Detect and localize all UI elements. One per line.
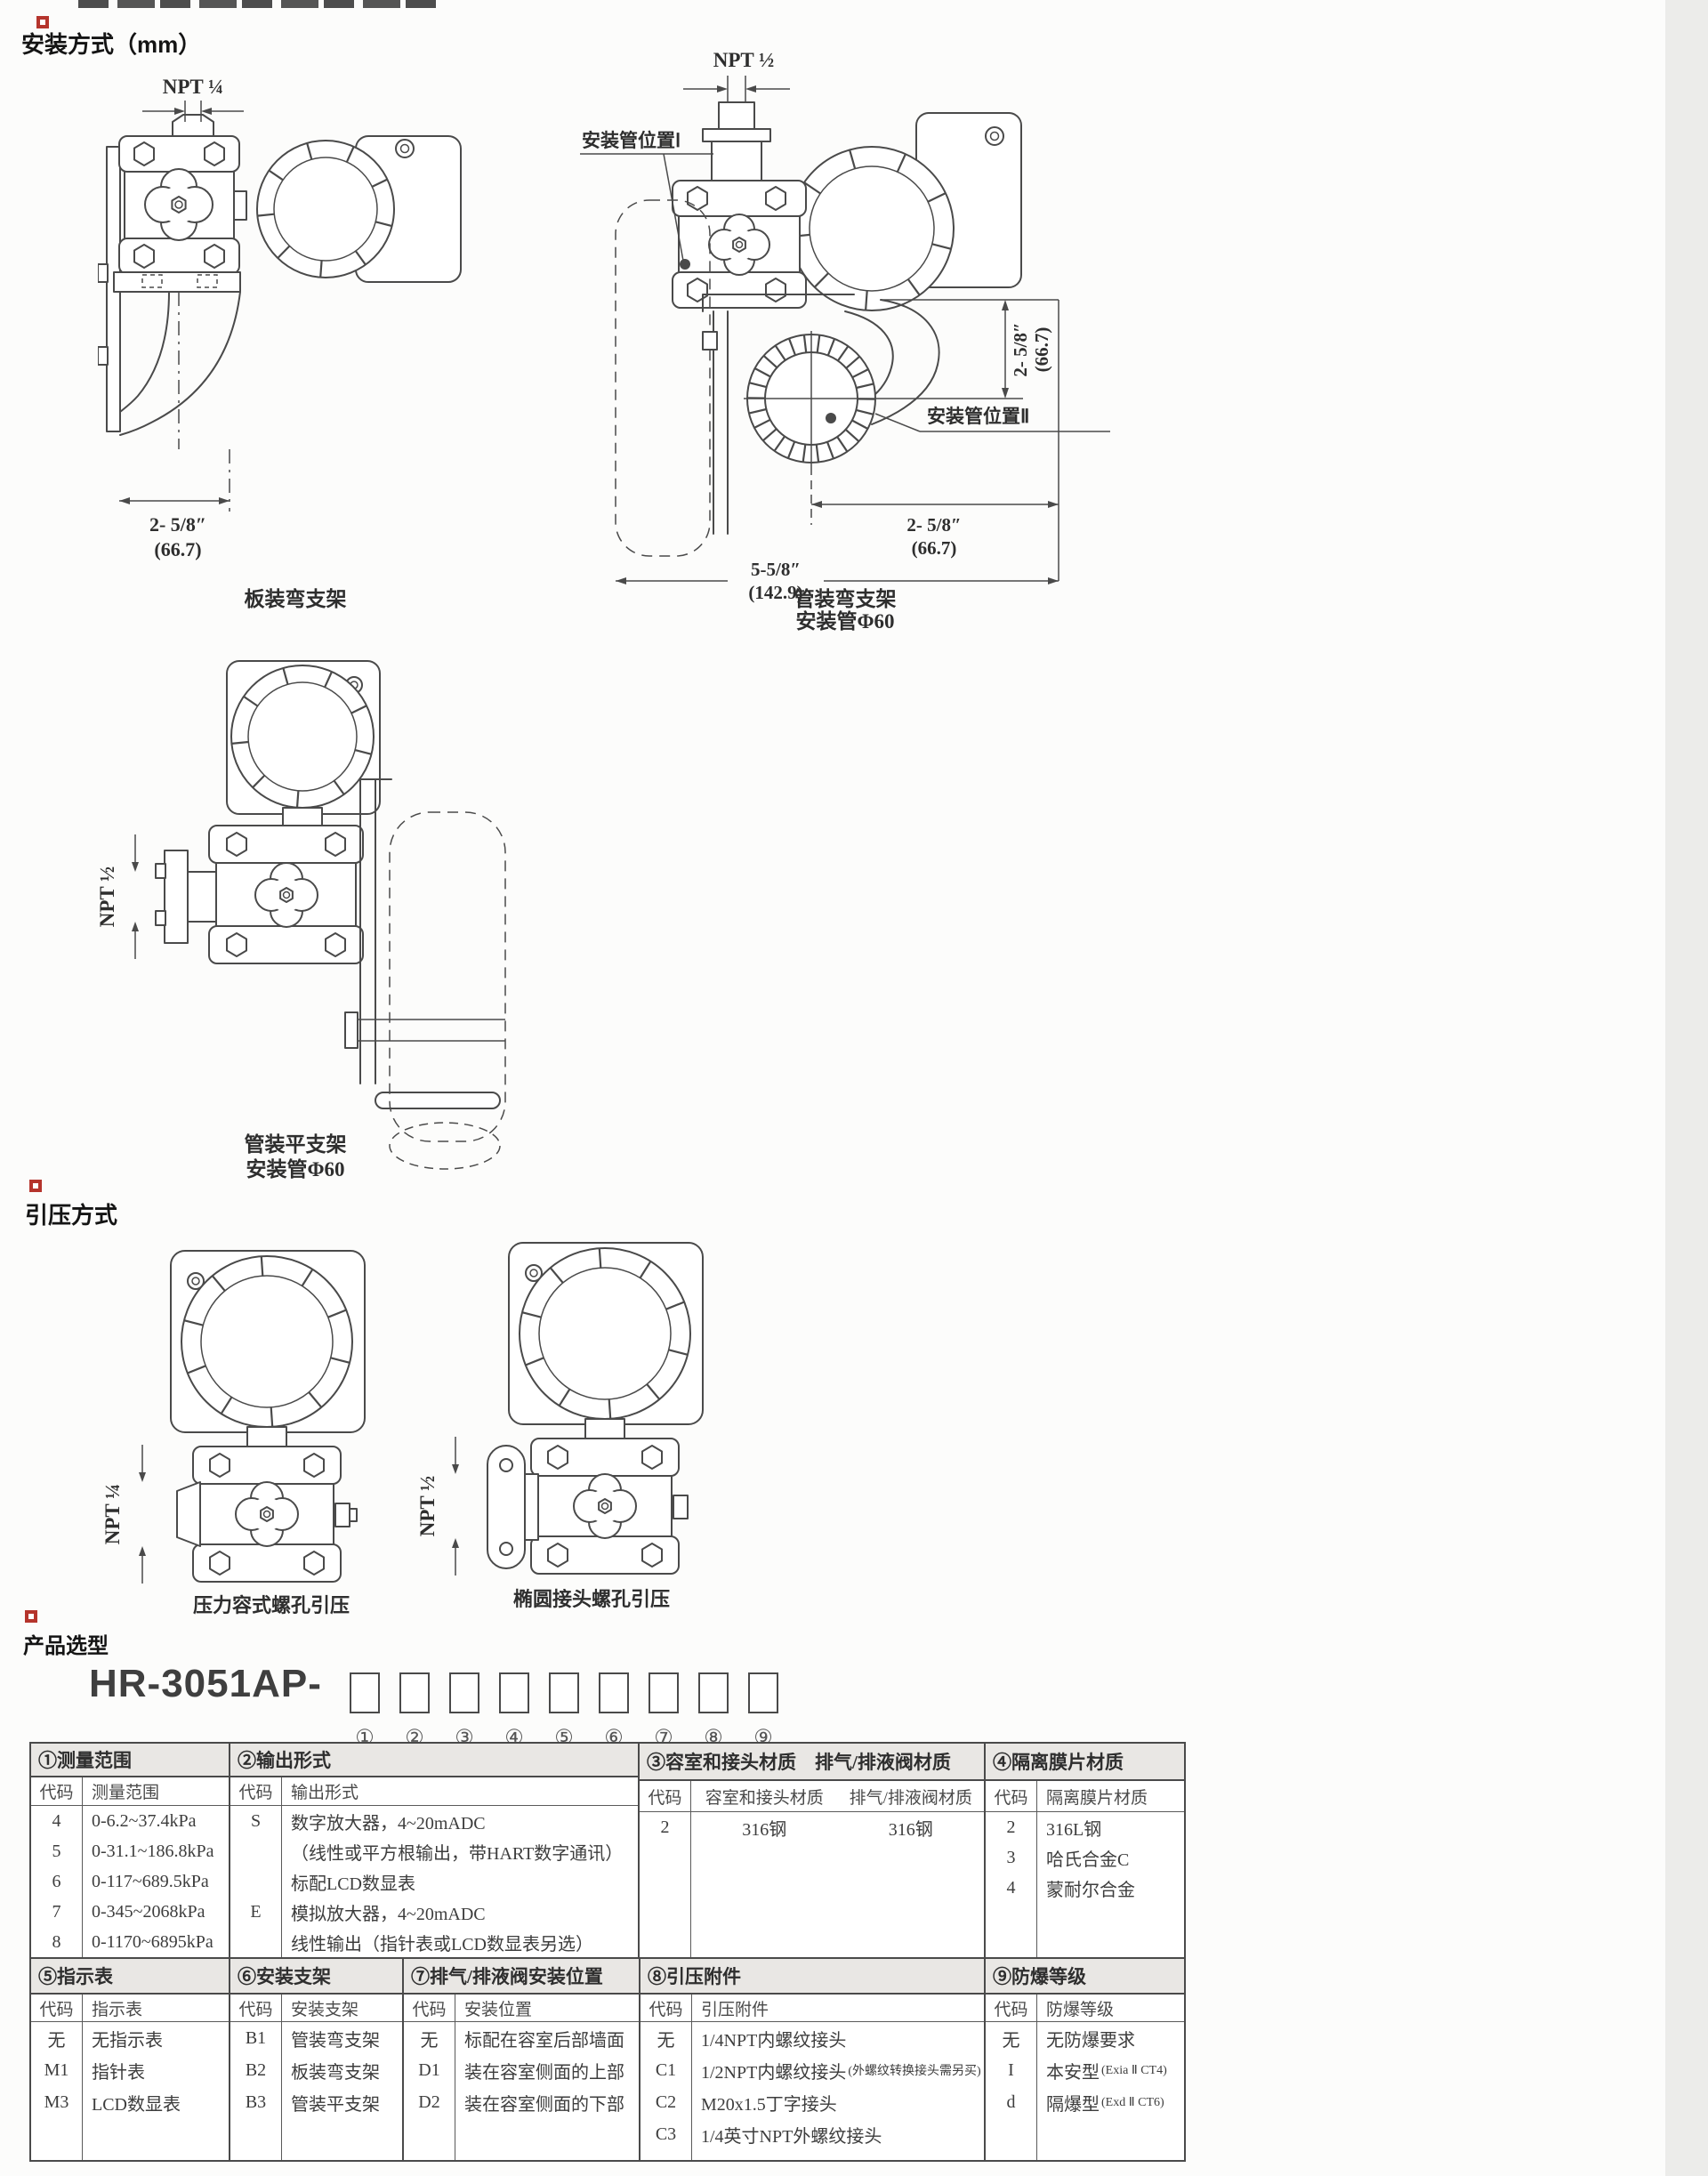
column-measure-range: ①测量范围 代码 测量范围 4 0-6.2~37.4kPa 5 0-31.1~1…: [31, 1744, 230, 1957]
table-row: 无 标配在容室后部墙面: [404, 2022, 639, 2054]
scan-edge-band: [1665, 0, 1708, 2176]
cropped-text-strip: [78, 0, 445, 8]
option-box-8: [698, 1672, 729, 1713]
table-row: B2 板装弯支架: [230, 2054, 402, 2086]
vertical-dim-mm-label: (66.7): [1031, 327, 1052, 373]
column-header: ⑦排气/排液阀安装位置: [404, 1959, 639, 1995]
subheader-label: 输出形式: [282, 1777, 638, 1805]
npt-dimension: [139, 1445, 146, 1584]
table-row: C3 1/4英寸NPT外螺纹接头: [640, 2118, 984, 2150]
table-row: M1 指针表: [31, 2054, 229, 2086]
desc-note: (外螺纹转换接头需另买): [848, 2061, 980, 2079]
desc-note: (Exia Ⅱ CT4): [1101, 2063, 1167, 2078]
desc-cell: 0-345~2068kPa: [83, 1897, 229, 1927]
desc-cell: 0-31.1~186.8kPa: [83, 1836, 229, 1866]
table-row: 无 无指示表: [31, 2022, 229, 2054]
code-cell: [230, 1866, 282, 1897]
electronics-housing: [227, 661, 380, 814]
table-row: 7 0-345~2068kPa: [31, 1897, 229, 1927]
subheader-label-1: 容室和接头材质: [691, 1785, 838, 1809]
table-row: B1 管装弯支架: [230, 2022, 402, 2054]
code-cell: C3: [640, 2118, 692, 2150]
model-option-2: ②: [399, 1672, 431, 1751]
table-row: S 数字放大器，4~20mADC: [230, 1806, 638, 1836]
table-row: 3 哈氏合金C: [986, 1842, 1184, 1873]
mounting-pipe-dashed: [390, 812, 505, 1169]
desc-cell: 哈氏合金C: [1037, 1842, 1184, 1873]
table-row: 标配LCD数显表: [230, 1866, 638, 1897]
dim-mm-label: (66.7): [154, 538, 201, 560]
subheader-label-2: 排气/排液阀材质: [838, 1785, 985, 1809]
column-header: ⑧引压附件: [640, 1959, 984, 1995]
desc-cell: 模拟放大器，4~20mADC: [282, 1897, 638, 1927]
column-header: ③容室和接头材质 排气/排液阀材质: [640, 1744, 984, 1781]
diagram-caption-line2: 安装管Φ60: [246, 1157, 344, 1181]
code-cell: 无: [31, 2022, 83, 2054]
transmitter-body: [177, 1427, 357, 1582]
desc-cell: 指针表: [83, 2054, 229, 2086]
option-box-3: [449, 1672, 479, 1713]
table-row: 5 0-31.1~186.8kPa: [31, 1836, 229, 1866]
desc-cell: 管装平支架: [282, 2086, 402, 2118]
column-bracket: ⑥安装支架 代码 安装支架 B1 管装弯支架 B2 板装弯支架 B3: [230, 1959, 404, 2160]
selection-table: ①测量范围 代码 测量范围 4 0-6.2~37.4kPa 5 0-31.1~1…: [29, 1742, 1186, 2162]
subheader-code: 代码: [986, 1781, 1037, 1811]
code-cell: 2: [640, 1812, 691, 1842]
pipe-position-2-label: 安装管位置Ⅱ: [927, 406, 1029, 427]
model-prefix: HR-3051AP-: [89, 1662, 322, 1706]
datasheet-page: 安装方式（mm）: [0, 0, 1708, 2176]
diagram-pipe-flat-bracket: NPT ½ 管装平支架 安装管Φ60: [89, 648, 605, 1190]
npt-half-label: NPT ½: [418, 1476, 439, 1537]
transmitter-body: [209, 808, 363, 963]
npt-dimension: [683, 76, 790, 102]
diagram-caption: 板装弯支架: [245, 587, 347, 610]
desc-note: (Exd Ⅱ CT6): [1101, 2095, 1164, 2110]
code-cell: 无: [640, 2022, 692, 2054]
option-box-7: [649, 1672, 679, 1713]
desc-cell: （线性或平方根输出，带HART数字通讯）: [282, 1836, 638, 1866]
flat-bracket: [345, 779, 505, 1108]
section-title-selection: 产品选型: [23, 1628, 109, 1659]
code-cell: 4: [31, 1806, 83, 1836]
subheader-label: 隔离膜片材质: [1037, 1781, 1184, 1811]
column-header: ⑤指示表: [31, 1959, 229, 1995]
code-cell: 7: [31, 1897, 83, 1927]
subheader-code: 代码: [404, 1995, 455, 2021]
table-row: 无 无防爆要求: [986, 2022, 1184, 2054]
model-option-7: ⑦: [648, 1672, 680, 1751]
subheader-code: 代码: [986, 1995, 1037, 2021]
code-cell: S: [230, 1806, 282, 1836]
subheader-code: 代码: [31, 1995, 83, 2021]
desc-cell: 管装弯支架: [282, 2022, 402, 2054]
table-row: 4 蒙耐尔合金: [986, 1873, 1184, 1903]
subheader-label: 指示表: [83, 1995, 229, 2021]
diagram-caption: 压力容式螺孔引压: [193, 1594, 350, 1616]
code-cell: D1: [404, 2054, 455, 2086]
dim-inch-label: 2- 5/8″: [149, 513, 206, 536]
subheader-label: 安装支架: [282, 1995, 402, 2021]
dim1-inch-label: 2- 5/8″: [906, 514, 961, 536]
diagram-pipe-bent-bracket: 安装管位置Ⅰ 安装管位置Ⅱ NPT ½ 2- 5/8″ (66.: [578, 40, 1112, 632]
desc-cell: 板装弯支架: [282, 2054, 402, 2086]
material-cell-1: 316钢: [691, 1815, 838, 1841]
model-option-5: ⑤: [548, 1672, 580, 1751]
npt-half-label: NPT ½: [713, 49, 775, 71]
table-row: C1 1/2NPT内螺纹接头(外螺纹转换接头需另买): [640, 2054, 984, 2086]
desc-cell: 0-1170~6895kPa: [83, 1927, 229, 1957]
option-box-5: [549, 1672, 579, 1713]
subheader-label: 防爆等级: [1037, 1995, 1184, 2021]
dim1-mm-label: (66.7): [912, 537, 957, 559]
model-option-1: ①: [349, 1672, 381, 1751]
section-title-pressure-tap: 引压方式: [25, 1197, 117, 1230]
desc-cell: 装在容室侧面的下部: [455, 2086, 639, 2118]
desc-cell: 1/4英寸NPT外螺纹接头: [701, 2122, 882, 2148]
code-cell: 4: [986, 1873, 1037, 1903]
table-row: 2 316钢 316钢: [640, 1812, 984, 1842]
mounting-bracket: [114, 272, 240, 512]
table-row: 6 0-117~689.5kPa: [31, 1866, 229, 1897]
table-row: I 本安型(Exia Ⅱ CT4): [986, 2054, 1184, 2086]
model-option-8: ⑧: [697, 1672, 729, 1751]
npt-dimension: [452, 1437, 459, 1576]
option-box-6: [599, 1672, 629, 1713]
desc-cell: 0-117~689.5kPa: [83, 1866, 229, 1897]
desc-cell: 装在容室侧面的上部: [455, 2054, 639, 2086]
desc-cell: 无指示表: [83, 2022, 229, 2054]
subheader-code: 代码: [230, 1995, 282, 2021]
pipe-position-1-label: 安装管位置Ⅰ: [582, 130, 681, 151]
diagram-caption: 椭圆接头螺孔引压: [513, 1588, 670, 1610]
subheader-code: 代码: [230, 1777, 282, 1805]
desc-cell: 数字放大器，4~20mADC: [282, 1806, 638, 1836]
desc-cell: M20x1.5丁字接头: [701, 2090, 837, 2116]
table-row: D1 装在容室侧面的上部: [404, 2054, 639, 2086]
diagram-caption-line1: 管装弯支架: [794, 587, 897, 610]
code-cell: D2: [404, 2086, 455, 2118]
column-header: ④隔离膜片材质: [986, 1744, 1184, 1781]
dim2-inch-label: 5-5/8″: [751, 559, 801, 580]
npt-half-label: NPT ½: [96, 866, 118, 928]
pipe-clamp: [744, 331, 1023, 466]
column-body-material: ③容室和接头材质 排气/排液阀材质 代码 容室和接头材质 排气/排液阀材质 2 …: [640, 1744, 986, 1957]
desc-cell: 1/2NPT内螺纹接头: [701, 2058, 846, 2083]
diagram-caption-line2: 安装管Φ60: [795, 609, 894, 632]
table-row: 无 1/4NPT内螺纹接头: [640, 2022, 984, 2054]
code-cell: [230, 1836, 282, 1866]
section-marker-icon: [29, 1180, 42, 1192]
code-cell: 2: [986, 1812, 1037, 1842]
table-row: d 隔爆型(Exd Ⅱ CT6): [986, 2086, 1184, 2118]
code-cell: 3: [986, 1842, 1037, 1873]
column-output-type: ②输出形式 代码 输出形式 S 数字放大器，4~20mADC （线性或平方根输出…: [230, 1744, 640, 1957]
elbow-fitting: [156, 850, 216, 943]
model-option-3: ③: [448, 1672, 480, 1751]
table-row: B3 管装平支架: [230, 2086, 402, 2118]
table-band-1: ①测量范围 代码 测量范围 4 0-6.2~37.4kPa 5 0-31.1~1…: [29, 1742, 1186, 1959]
option-box-4: [499, 1672, 529, 1713]
code-cell: 6: [31, 1866, 83, 1897]
table-row: 线性输出（指针表或LCD数显表另选）: [230, 1927, 638, 1957]
code-cell: [230, 1927, 282, 1957]
top-fitting: [703, 102, 770, 181]
diagram-caption-line1: 管装平支架: [245, 1132, 347, 1156]
table-row: 2 316L钢: [986, 1812, 1184, 1842]
code-cell: C1: [640, 2054, 692, 2086]
diagram-oval-adapter-tap: NPT ½ 椭圆接头螺孔引压: [418, 1232, 845, 1622]
option-box-9: [748, 1672, 778, 1713]
lower-dimension-2: [616, 577, 1059, 584]
npt-dimension: [132, 834, 139, 959]
column-indicator: ⑤指示表 代码 指示表 无 无指示表 M1 指针表 M3: [31, 1959, 230, 2160]
desc-cell: 0-6.2~37.4kPa: [83, 1806, 229, 1836]
code-cell: 无: [986, 2022, 1037, 2054]
code-cell: B3: [230, 2086, 282, 2118]
table-row: E 模拟放大器，4~20mADC: [230, 1897, 638, 1927]
code-cell: M3: [31, 2086, 83, 2118]
subheader-code: 代码: [640, 1995, 692, 2021]
subheader-label: 测量范围: [83, 1777, 229, 1805]
desc-cell: 316L钢: [1037, 1812, 1184, 1842]
electronics-housing: [790, 113, 1021, 310]
column-header: ②输出形式: [230, 1744, 638, 1777]
electronics-housing: [509, 1243, 703, 1424]
table-row: C2 M20x1.5丁字接头: [640, 2086, 984, 2118]
code-cell: M1: [31, 2054, 83, 2086]
npt-quarter-label: NPT ¼: [101, 1484, 124, 1545]
code-cell: B2: [230, 2054, 282, 2086]
code-cell: d: [986, 2086, 1037, 2118]
desc-cell: 隔爆型: [1046, 2090, 1100, 2116]
column-header: ⑨防爆等级: [986, 1959, 1184, 1995]
section-marker-icon: [25, 1610, 37, 1623]
code-cell: 无: [404, 2022, 455, 2054]
table-row: 4 0-6.2~37.4kPa: [31, 1806, 229, 1836]
table-row: M3 LCD数显表: [31, 2086, 229, 2118]
option-box-2: [399, 1672, 430, 1713]
table-band-2: ⑤指示表 代码 指示表 无 无指示表 M1 指针表 M3: [29, 1959, 1186, 2162]
model-option-boxes: ① ② ③ ④ ⑤ ⑥ ⑦ ⑧: [349, 1672, 779, 1751]
subheader-code: 代码: [640, 1781, 691, 1811]
column-explosion-rating: ⑨防爆等级 代码 防爆等级 无 无防爆要求 I 本安型(Exia Ⅱ CT4): [986, 1959, 1184, 2160]
model-option-4: ④: [498, 1672, 530, 1751]
material-cell-2: 316钢: [838, 1815, 985, 1841]
section-title-mounting: 安装方式（mm）: [21, 27, 201, 60]
option-box-1: [350, 1672, 380, 1713]
subheader-label: 引压附件: [692, 1995, 984, 2021]
npt-quarter-label: NPT ¼: [163, 76, 224, 98]
desc-cell: LCD数显表: [83, 2086, 229, 2118]
code-cell: I: [986, 2054, 1037, 2086]
code-cell: E: [230, 1897, 282, 1927]
electronics-housing: [171, 1251, 365, 1432]
table-row: 8 0-1170~6895kPa: [31, 1927, 229, 1957]
code-cell: C2: [640, 2086, 692, 2118]
subheader-label: 安装位置: [455, 1995, 639, 2021]
column-diaphragm-material: ④隔离膜片材质 代码 隔离膜片材质 2 316L钢 3 哈氏合金C 4: [986, 1744, 1184, 1957]
transmitter-body: [673, 181, 806, 308]
table-row: D2 装在容室侧面的下部: [404, 2086, 639, 2118]
code-cell: B1: [230, 2022, 282, 2054]
transmitter-body: [119, 115, 246, 274]
diagram-panel-bracket: NPT ¼ 2- 5/8″ (66.7) 板装弯支架: [98, 67, 480, 627]
model-option-9: ⑨: [747, 1672, 779, 1751]
electronics-housing: [257, 136, 461, 282]
desc-cell: 标配LCD数显表: [282, 1866, 638, 1897]
width-dimension: [119, 497, 230, 504]
column-header: ①测量范围: [31, 1744, 229, 1777]
code-cell: 5: [31, 1836, 83, 1866]
column-valve-position: ⑦排气/排液阀安装位置 代码 安装位置 无 标配在容室后部墙面 D1 装在容室侧…: [404, 1959, 640, 2160]
desc-cell: 本安型: [1046, 2058, 1100, 2083]
desc-cell: 标配在容室后部墙面: [455, 2022, 639, 2054]
code-cell: 8: [31, 1927, 83, 1957]
desc-cell: 1/4NPT内螺纹接头: [701, 2026, 846, 2051]
desc-cell: 蒙耐尔合金: [1037, 1873, 1184, 1903]
model-option-6: ⑥: [598, 1672, 630, 1751]
column-header: ⑥安装支架: [230, 1959, 402, 1995]
desc-cell: 无防爆要求: [1046, 2026, 1135, 2051]
subheader-code: 代码: [31, 1777, 83, 1805]
transmitter-body: [531, 1419, 688, 1574]
vertical-dim-inch-label: 2- 5/8″: [1010, 322, 1031, 376]
desc-cell: 线性输出（指针表或LCD数显表另选）: [282, 1927, 638, 1957]
column-fitting: ⑧引压附件 代码 引压附件 无 1/4NPT内螺纹接头 C1 1/2NPT内螺纹…: [640, 1959, 986, 2160]
table-row: （线性或平方根输出，带HART数字通讯）: [230, 1836, 638, 1866]
